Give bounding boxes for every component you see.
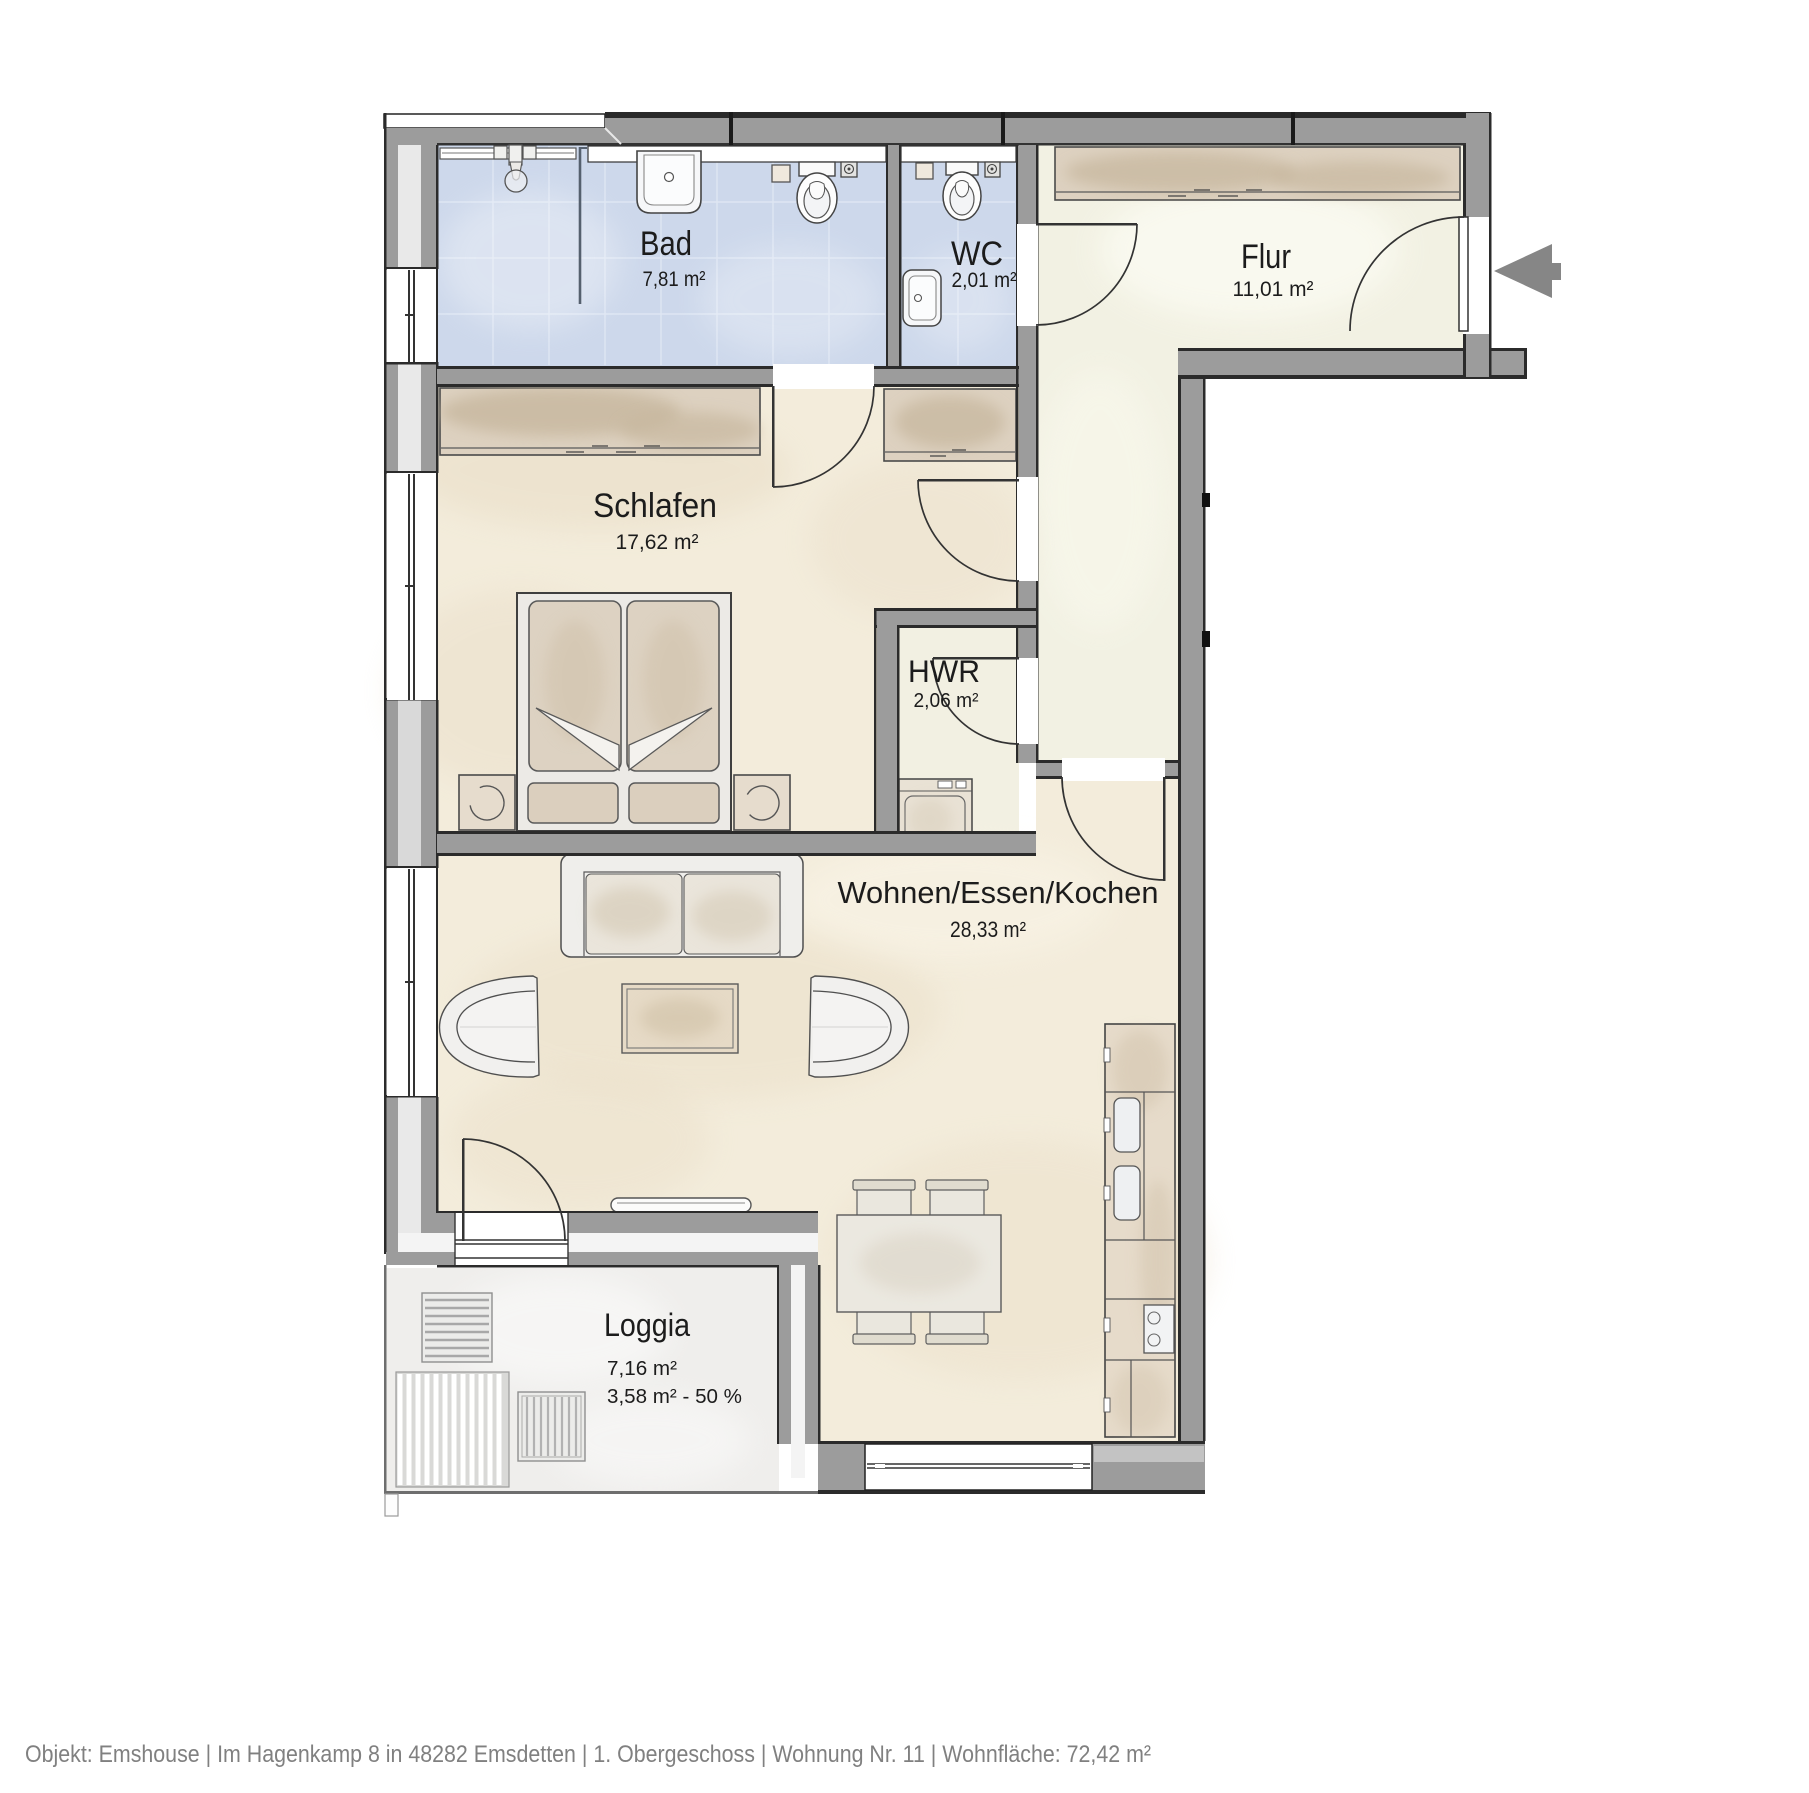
svg-text:28,33 m²: 28,33 m²	[950, 917, 1026, 942]
svg-text:11,01 m²: 11,01 m²	[1233, 278, 1314, 301]
svg-text:Wohnen/Essen/Kochen: Wohnen/Essen/Kochen	[838, 876, 1159, 910]
svg-text:7,81 m²: 7,81 m²	[643, 268, 706, 291]
svg-text:17,62 m²: 17,62 m²	[616, 531, 699, 554]
svg-text:WC: WC	[951, 235, 1003, 273]
svg-text:7,16 m²: 7,16 m²	[607, 1357, 677, 1380]
svg-text:Objekt: Emshouse | Im Hagenkam: Objekt: Emshouse | Im Hagenkamp 8 in 482…	[25, 1741, 1151, 1768]
svg-text:Schlafen: Schlafen	[593, 487, 717, 525]
svg-text:HWR: HWR	[908, 653, 980, 689]
svg-text:Bad: Bad	[640, 225, 692, 263]
svg-text:Loggia: Loggia	[604, 1307, 690, 1343]
svg-text:3,58 m² - 50 %: 3,58 m² - 50 %	[607, 1385, 742, 1408]
svg-text:2,06 m²: 2,06 m²	[914, 689, 979, 712]
svg-text:Flur: Flur	[1241, 238, 1291, 276]
svg-text:2,01 m²: 2,01 m²	[952, 269, 1017, 292]
